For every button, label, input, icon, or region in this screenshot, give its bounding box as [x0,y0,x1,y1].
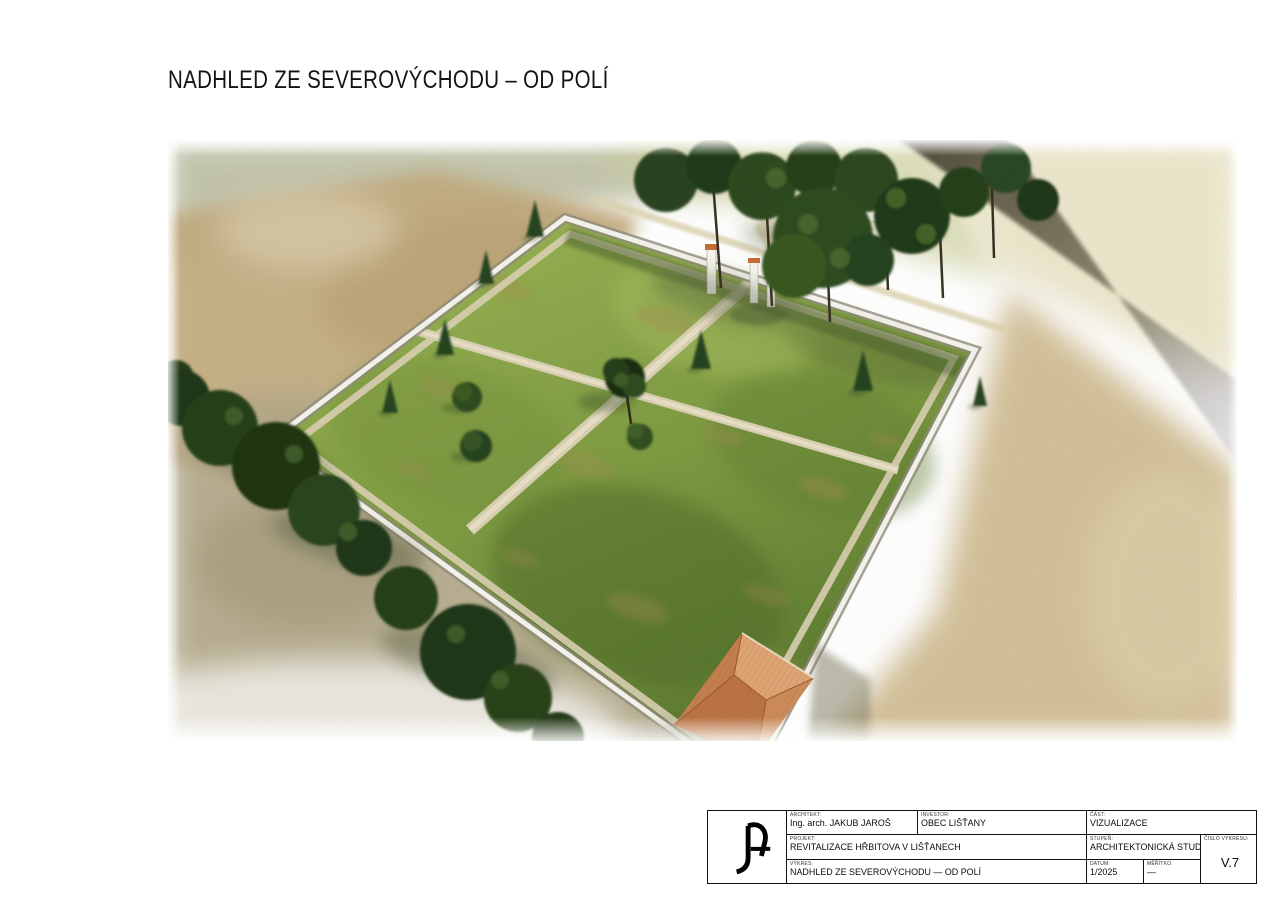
field-part: ČÁST: VIZUALIZACE [1087,811,1256,834]
field-value: REVITALIZACE HŘBITOVA V LIŠŤANECH [790,842,1068,853]
architect-logo [708,811,786,883]
paper-grain [168,140,1237,741]
field-value: VIZUALIZACE [1090,818,1246,829]
field-value: V.7 [1221,856,1239,869]
ja-monogram-icon [726,818,772,878]
field-value: NADHLED ZE SEVEROVÝCHODU — OD POLÍ [790,867,1068,878]
field-date: DATUM: 1/2025 [1087,860,1143,883]
field-label: ČÍSLO VÝKRESU: [1204,836,1256,842]
field-value: OBEC LIŠŤANY [921,818,1076,829]
field-value: Ing. arch. JAKUB JAROŠ [790,818,909,829]
visualization-image [168,140,1237,741]
field-value: ARCHITEKTONICKÁ STUDIE [1090,842,1193,853]
page-title: NADHLED ZE SEVEROVÝCHODU – OD POLÍ [168,66,609,95]
field-architect: ARCHITEKT: Ing. arch. JAKUB JAROŠ [787,811,917,834]
field-drawing-number: ČÍSLO VÝKRESU: V.7 [1201,835,1256,883]
title-block: ARCHITEKT: Ing. arch. JAKUB JAROŠ INVEST… [707,810,1257,884]
field-value: — [1147,867,1197,878]
field-investor: INVESTOR: OBEC LIŠŤANY [918,811,1086,834]
field-value: 1/2025 [1090,867,1140,878]
drawing-sheet: NADHLED ZE SEVEROVÝCHODU – OD POLÍ [0,0,1280,905]
field-scale: MĚŘÍTKO: — [1144,860,1200,883]
field-stage: STUPEŇ: ARCHITEKTONICKÁ STUDIE [1087,835,1200,858]
field-drawing-title: VÝKRES: NADHLED ZE SEVEROVÝCHODU — OD PO… [787,860,1086,883]
field-project: PROJEKT: REVITALIZACE HŘBITOVA V LIŠŤANE… [787,835,1086,858]
